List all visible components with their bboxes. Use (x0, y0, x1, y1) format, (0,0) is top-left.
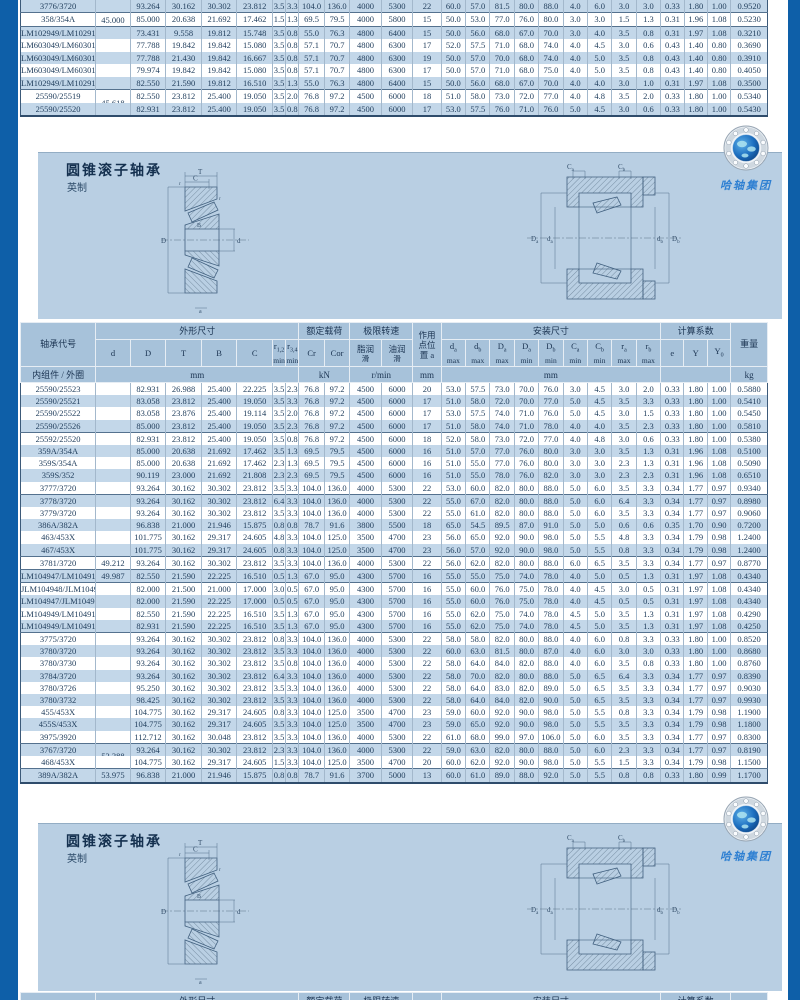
value-cell: 1.3 (286, 608, 299, 620)
value-cell: 136.0 (324, 694, 349, 706)
column-header: 安装尺寸 (441, 323, 660, 340)
value-cell: 3.0 (587, 469, 611, 481)
table-row: 389A/382A53.97596.83821.00021.94615.8750… (21, 769, 768, 783)
bearing-designation: LM102949/LM102911 (21, 77, 96, 90)
value-cell: 50.0 (441, 64, 465, 76)
value-cell: 85.000 (130, 420, 166, 433)
value-cell: 67.0 (514, 77, 538, 90)
value-cell: 3.3 (286, 731, 299, 744)
value-cell: 20 (413, 383, 441, 396)
value-cell: 4000 (350, 731, 382, 744)
value-cell: 104.0 (299, 482, 324, 495)
top-table-section: 3776/372093.26430.16230.30223.8123.53.31… (20, 0, 768, 117)
value-cell: 79.5 (324, 469, 349, 481)
column-header: Dbmin (539, 340, 563, 367)
value-cell: 0.33 (661, 420, 684, 433)
bore-diameter-cell: 45.618 (96, 90, 131, 103)
value-cell: 3.5 (272, 718, 285, 730)
value-cell: 0.33 (661, 432, 684, 445)
value-cell: 25.400 (201, 395, 237, 407)
value-cell: 92.0 (490, 718, 514, 730)
value-cell: 0.33 (661, 633, 684, 646)
value-cell: 74.0 (514, 608, 538, 620)
bearing-designation: 359A/354A (21, 445, 96, 457)
table-row: LM104949/LM10491182.55021.59022.22516.51… (21, 608, 768, 620)
value-cell: 0.33 (661, 395, 684, 407)
value-cell: 6.0 (587, 633, 611, 646)
value-cell: 62.0 (466, 620, 490, 633)
value-cell: 76.0 (539, 383, 563, 396)
table-row: LM102949/LM10291045.24273.4319.55819.812… (21, 26, 768, 39)
value-cell: 21.590 (166, 570, 202, 583)
value-cell: 20 (413, 756, 441, 769)
value-cell: 90.119 (130, 469, 166, 481)
table-row: 359S/354A85.00020.63821.69217.4622.31.36… (21, 457, 768, 469)
value-cell: 80.0 (514, 633, 538, 646)
bearing-designation: 25590/25519 (21, 90, 96, 103)
value-cell: 70.0 (514, 395, 538, 407)
value-cell: 5700 (381, 620, 413, 633)
value-cell: 0.98 (707, 531, 730, 543)
value-cell: 5.0 (563, 519, 587, 531)
value-cell: 98.0 (539, 756, 563, 769)
value-cell: 5.0 (587, 608, 611, 620)
value-cell: 16.510 (237, 77, 273, 90)
value-cell: 4.0 (563, 432, 587, 445)
value-cell: 19 (413, 52, 441, 64)
bearing-designation: 25590/25526 (21, 420, 96, 433)
value-cell: 57.0 (466, 445, 490, 457)
value-cell: 79.5 (324, 445, 349, 457)
column-header: Camin (563, 340, 587, 367)
value-cell: 4000 (350, 682, 382, 694)
svg-text:Db: Db (672, 906, 680, 916)
value-cell: 5.0 (563, 682, 587, 694)
value-cell: 81.5 (490, 645, 514, 657)
value-cell: 0.98 (707, 706, 730, 718)
value-cell: 4.0 (587, 420, 611, 433)
value-cell: 1.08 (707, 620, 730, 633)
value-cell: 0.5410 (731, 395, 768, 407)
value-cell: 30.162 (166, 756, 202, 769)
value-cell: 3.5 (612, 694, 636, 706)
value-cell: 0.6 (636, 39, 660, 51)
value-cell: 0.31 (661, 26, 684, 39)
value-cell: 22 (413, 507, 441, 519)
value-cell: 3.0 (587, 457, 611, 469)
value-cell: 1.08 (707, 77, 730, 90)
value-cell: 30.162 (166, 657, 202, 669)
table-row: 25590/2552685.00023.81225.40019.0503.52.… (21, 420, 768, 433)
value-cell: 3.5 (612, 620, 636, 633)
column-header: Cor (324, 340, 349, 367)
value-cell: 1.2400 (731, 531, 768, 543)
column-header (661, 367, 731, 383)
value-cell: 0.31 (661, 583, 684, 596)
value-cell: 82.931 (130, 103, 166, 116)
action-point-header: 作用点位置 a (413, 323, 441, 367)
value-cell: 75.0 (490, 620, 514, 633)
value-cell: 83.0 (490, 682, 514, 694)
value-cell: 97.2 (324, 395, 349, 407)
value-cell: 58.0 (441, 657, 465, 669)
value-cell: 6000 (381, 445, 413, 457)
value-cell: 3.5 (612, 718, 636, 730)
value-cell: 3.3 (636, 682, 660, 694)
bearing-designation: LM102949/LM102910 (21, 26, 96, 39)
value-cell: 23.812 (237, 556, 273, 569)
value-cell: 1.96 (684, 469, 707, 481)
value-cell: 25.400 (201, 432, 237, 445)
value-cell: 18 (413, 90, 441, 103)
section-title: 圆锥滚子轴承 (66, 831, 162, 851)
value-cell: 22 (413, 682, 441, 694)
svg-text:a: a (199, 980, 202, 986)
value-cell: 3.3 (286, 494, 299, 507)
value-cell: 19.842 (201, 64, 237, 76)
value-cell: 6.0 (587, 507, 611, 519)
table-row: 3975/3920112.71230.16230.04823.8123.53.3… (21, 731, 768, 744)
value-cell: 0.5100 (731, 445, 768, 457)
value-cell: 15.748 (237, 26, 273, 39)
value-cell: 1.80 (684, 769, 707, 783)
column-header: 极限转速 (350, 993, 413, 1000)
value-cell: 4.5 (587, 395, 611, 407)
value-cell: 53.0 (466, 13, 490, 26)
value-cell: 97.2 (324, 432, 349, 445)
value-cell: 93.264 (130, 494, 166, 507)
bore-diameter-cell (96, 670, 131, 682)
value-cell: 3.0 (636, 645, 660, 657)
value-cell: 58.0 (441, 633, 465, 646)
value-cell: 3.5 (612, 682, 636, 694)
value-cell: 55.0 (466, 570, 490, 583)
value-cell: 6.5 (587, 556, 611, 569)
value-cell: 22 (413, 731, 441, 744)
value-cell: 1.00 (707, 645, 730, 657)
value-cell: 3.5 (272, 395, 285, 407)
value-cell: 136.0 (324, 670, 349, 682)
value-cell: 1.80 (684, 432, 707, 445)
value-cell: 1.00 (707, 383, 730, 396)
bore-diameter-cell: 49.212 (96, 556, 131, 569)
value-cell: 1.80 (684, 633, 707, 646)
value-cell: 1.79 (684, 706, 707, 718)
value-cell: 3.5 (273, 64, 286, 76)
svg-text:r: r (219, 868, 221, 873)
bearing-designation: 3784/3720 (21, 670, 96, 682)
value-cell: 0.43 (661, 64, 684, 76)
value-cell: 95.0 (324, 608, 349, 620)
bearing-designation: 455S/453X (21, 718, 96, 730)
value-cell: 76.0 (539, 103, 563, 116)
bearing-designation: 3777/3720 (21, 482, 96, 495)
value-cell: 4000 (350, 645, 382, 657)
value-cell: 1.5 (612, 13, 636, 26)
value-cell: 93.264 (130, 482, 166, 495)
value-cell: 0.6 (636, 519, 660, 531)
table-row: LM102949/LM10291182.55021.59019.81216.51… (21, 77, 768, 90)
value-cell: 77.0 (539, 90, 563, 103)
value-cell: 87.0 (539, 645, 563, 657)
value-cell: 82.931 (130, 432, 166, 445)
value-cell: 30.162 (166, 507, 202, 519)
value-cell: 4.5 (587, 595, 611, 607)
value-cell: 80.0 (539, 445, 563, 457)
value-cell: 1.00 (707, 432, 730, 445)
value-cell: 30.302 (201, 694, 237, 706)
value-cell: 104.0 (299, 544, 324, 557)
value-cell: 104.0 (299, 694, 324, 706)
value-cell: 76.3 (324, 77, 349, 90)
value-cell: 6400 (381, 77, 413, 90)
bearing-designation: 3975/3920 (21, 731, 96, 744)
bearing-cross-section-drawing: TC Dd B rr a (155, 165, 255, 320)
value-cell: 16 (413, 570, 441, 583)
value-cell: 0.4050 (731, 64, 768, 76)
column-header: 极限转速 (350, 323, 413, 340)
value-cell: 4500 (350, 103, 382, 116)
value-cell: 58.0 (441, 694, 465, 706)
value-cell: 85.000 (130, 445, 166, 457)
table-row: 3781/372049.21293.26430.16230.30223.8123… (21, 556, 768, 569)
value-cell: 1.3 (636, 445, 660, 457)
value-cell: 3.3 (636, 544, 660, 557)
value-cell: 4500 (350, 90, 382, 103)
svg-text:Da: Da (531, 906, 539, 916)
value-cell: 53.0 (441, 103, 465, 116)
value-cell: 5.5 (587, 544, 611, 557)
value-cell: 5300 (381, 507, 413, 519)
value-cell: 53.0 (441, 407, 465, 419)
value-cell: 5500 (381, 519, 413, 531)
value-cell: 88.0 (539, 507, 563, 519)
value-cell: 4000 (350, 0, 382, 13)
bearing-mounting-drawing: CaCb Dada dbDb (515, 163, 695, 318)
value-cell: 30.162 (166, 682, 202, 694)
value-cell: 3.0 (563, 445, 587, 457)
value-cell: 22.225 (201, 595, 237, 607)
value-cell: 78.0 (539, 570, 563, 583)
value-cell: 1.79 (684, 544, 707, 557)
value-cell: 17.000 (237, 595, 273, 607)
value-cell: 0.34 (661, 743, 684, 756)
column-header: Y (684, 340, 707, 367)
value-cell: 0.43 (661, 52, 684, 64)
bearing-designation: 3780/3726 (21, 682, 96, 694)
bore-diameter-cell (96, 457, 131, 469)
globe-bearing-icon (720, 795, 772, 848)
column-header: mm (413, 367, 441, 383)
value-cell: 22 (413, 494, 441, 507)
value-cell: 3.5 (612, 731, 636, 744)
value-cell: 3.3 (286, 556, 299, 569)
value-cell: 3.5 (272, 556, 285, 569)
value-cell: 17 (413, 395, 441, 407)
value-cell: 1.77 (684, 482, 707, 495)
value-cell: 0.5810 (731, 420, 768, 433)
value-cell: 0.8 (612, 769, 636, 783)
column-header: Damax (490, 340, 514, 367)
value-cell: 3.3 (636, 706, 660, 718)
value-cell: 5300 (381, 645, 413, 657)
value-cell: 6400 (381, 26, 413, 39)
value-cell: 71.0 (490, 39, 514, 51)
value-cell: 3.0 (563, 26, 587, 39)
value-cell: 55.0 (441, 570, 465, 583)
value-cell: 5300 (381, 682, 413, 694)
value-cell: 30.302 (201, 482, 237, 495)
bearing-designation: 3776/3720 (21, 0, 96, 13)
table-row: 455S/453X104.77530.16229.31724.6053.53.3… (21, 718, 768, 730)
value-cell: 55.0 (466, 457, 490, 469)
value-cell: 0.5450 (731, 407, 768, 419)
value-cell: 79.974 (130, 64, 166, 76)
value-cell: 30.302 (201, 670, 237, 682)
value-cell: 84.0 (490, 657, 514, 669)
value-cell: 1.2400 (731, 544, 768, 557)
bore-diameter-cell (96, 731, 131, 744)
value-cell: 13 (413, 769, 441, 783)
value-cell: 1.96 (684, 13, 707, 26)
bearing-designation: 455/453X (21, 706, 96, 718)
value-cell: 55.0 (441, 507, 465, 519)
value-cell: 1.5 (612, 756, 636, 769)
value-cell: 6.0 (587, 657, 611, 669)
value-cell: 1.5 (272, 756, 285, 769)
value-cell: 65.0 (441, 519, 465, 531)
value-cell: 3.3 (286, 531, 299, 543)
value-cell: 3.0 (612, 383, 636, 396)
bore-diameter-cell: 52.388 (96, 743, 131, 756)
value-cell: 76.0 (514, 445, 538, 457)
value-cell: 5.0 (563, 706, 587, 718)
value-cell: 5800 (381, 13, 413, 26)
value-cell: 6000 (381, 383, 413, 396)
value-cell: 3.5 (272, 445, 285, 457)
value-cell: 0.3500 (731, 77, 768, 90)
value-cell: 93.264 (130, 507, 166, 519)
column-header: 外形尺寸 (96, 993, 299, 1000)
value-cell: 77.788 (130, 39, 166, 51)
value-cell: 3.5 (612, 90, 636, 103)
table-row: 3767/372052.38893.26430.16230.30223.8122… (21, 743, 768, 756)
value-cell: 4.5 (563, 620, 587, 633)
value-cell: 0.5 (272, 570, 285, 583)
value-cell: 4.5 (563, 608, 587, 620)
bore-diameter-cell (96, 519, 131, 531)
value-cell: 0.31 (661, 457, 684, 469)
column-header: d (96, 340, 131, 367)
bearing-designation: 3780/3720 (21, 645, 96, 657)
value-cell: 91.6 (324, 769, 349, 783)
value-cell: 55.0 (441, 608, 465, 620)
value-cell: 0.6 (636, 103, 660, 116)
value-cell: 6.4 (612, 494, 636, 507)
bearing-designation: JLM104948/JLM104910 (21, 583, 96, 596)
value-cell: 6000 (381, 395, 413, 407)
value-cell: 21.590 (166, 620, 202, 633)
value-cell: 71.0 (490, 64, 514, 76)
value-cell: 58.0 (466, 633, 490, 646)
designation-header: 轴承代号 (21, 993, 96, 1000)
value-cell: 1.00 (707, 0, 730, 13)
value-cell: 30.302 (201, 743, 237, 756)
value-cell: 0.5 (272, 595, 285, 607)
value-cell: 23.812 (237, 482, 273, 495)
value-cell: 58.0 (466, 395, 490, 407)
value-cell: 125.0 (324, 531, 349, 543)
value-cell: 19.812 (201, 26, 237, 39)
value-cell: 3.0 (563, 383, 587, 396)
value-cell: 95.250 (130, 682, 166, 694)
value-cell: 2.3 (636, 420, 660, 433)
value-cell: 0.34 (661, 718, 684, 730)
value-cell: 3.3 (286, 395, 299, 407)
value-cell: 97.2 (324, 103, 349, 116)
svg-text:C: C (193, 846, 198, 854)
value-cell: 4300 (350, 570, 382, 583)
svg-text:B: B (197, 223, 201, 229)
value-cell: 0.8 (272, 544, 285, 557)
value-cell: 1.96 (684, 457, 707, 469)
value-cell: 70.0 (539, 26, 563, 39)
value-cell: 3.5 (272, 731, 285, 744)
bore-diameter-cell (96, 694, 131, 706)
value-cell: 77.0 (490, 457, 514, 469)
value-cell: 3700 (350, 769, 382, 783)
value-cell: 1.3 (636, 13, 660, 26)
value-cell: 93.264 (130, 743, 166, 756)
value-cell: 1.80 (684, 657, 707, 669)
bearing-designation: 468/453X (21, 756, 96, 769)
value-cell: 93.264 (130, 556, 166, 569)
value-cell: 3.3 (286, 743, 299, 756)
value-cell: 4000 (350, 13, 382, 26)
value-cell: 2.3 (286, 420, 299, 433)
bore-diameter-cell: 45.618 (96, 383, 131, 396)
value-cell: 4.0 (563, 595, 587, 607)
value-cell: 98.0 (539, 718, 563, 730)
value-cell: 93.264 (130, 0, 166, 13)
value-cell: 5.5 (587, 756, 611, 769)
value-cell: 1.70 (684, 519, 707, 531)
value-cell: 5.0 (563, 731, 587, 744)
svg-text:db: db (657, 906, 664, 916)
value-cell: 19.842 (201, 39, 237, 51)
value-cell: 2.3 (636, 469, 660, 481)
value-cell: 29.317 (201, 756, 237, 769)
value-cell: 0.31 (661, 13, 684, 26)
value-cell: 3.5 (272, 657, 285, 669)
bearing-designation: 386A/382A (21, 519, 96, 531)
value-cell: 3.5 (612, 608, 636, 620)
value-cell: 136.0 (324, 743, 349, 756)
column-header: Y0 (707, 340, 730, 367)
value-cell: 3.0 (636, 0, 660, 13)
bore-diameter-cell (96, 407, 131, 419)
value-cell: 5.0 (563, 694, 587, 706)
bore-diameter-cell (96, 595, 131, 607)
bore-diameter-cell (96, 645, 131, 657)
value-cell: 16 (413, 595, 441, 607)
value-cell: 1.3 (636, 608, 660, 620)
value-cell: 88.0 (539, 670, 563, 682)
bearing-designation: LM603049/LM603011 (21, 39, 96, 51)
value-cell: 65.0 (466, 718, 490, 730)
value-cell: 3.0 (612, 645, 636, 657)
value-cell: 0.8 (272, 706, 285, 718)
